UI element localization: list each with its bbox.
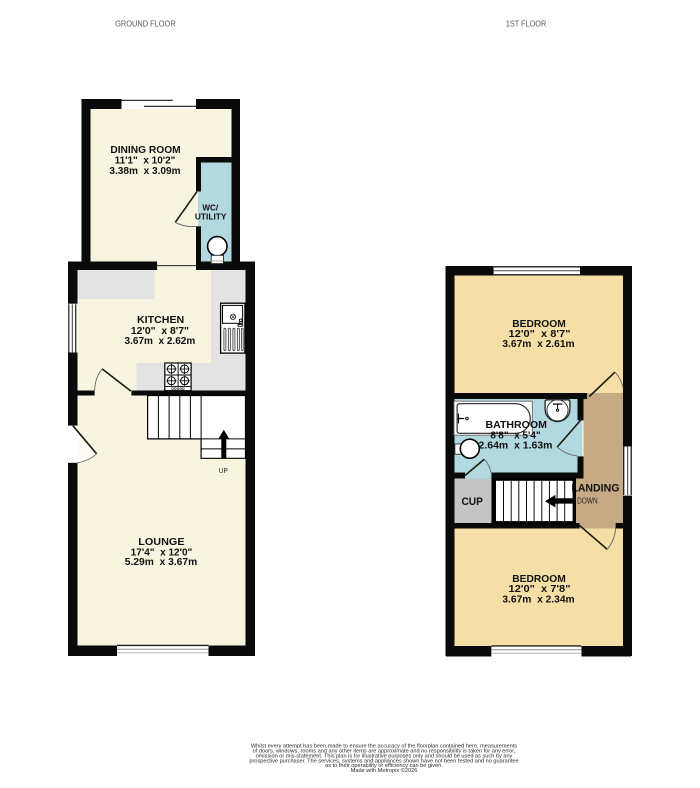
svg-text:GROUND FLOOR: GROUND FLOOR (115, 19, 176, 29)
svg-text:LANDING: LANDING (571, 482, 619, 494)
svg-text:CUP: CUP (461, 496, 483, 508)
svg-text:UTILITY: UTILITY (195, 213, 227, 222)
svg-text:UP: UP (219, 468, 228, 475)
svg-text:2.64m x 1.63m: 2.64m x 1.63m (479, 441, 553, 452)
svg-text:5.29m x 3.67m: 5.29m x 3.67m (125, 557, 198, 568)
svg-text:DOWN: DOWN (577, 497, 598, 506)
svg-text:3.67m x 2.34m: 3.67m x 2.34m (502, 594, 574, 605)
svg-text:1ST FLOOR: 1ST FLOOR (506, 19, 547, 29)
svg-text:3.67m x 2.62m: 3.67m x 2.62m (125, 336, 196, 347)
svg-text:11'1" x 10'2": 11'1" x 10'2" (115, 155, 176, 166)
svg-text:3.38m x 3.09m: 3.38m x 3.09m (109, 166, 180, 177)
svg-text:3.67m x 2.61m: 3.67m x 2.61m (502, 339, 574, 350)
svg-text:Made with Metropix ©2026: Made with Metropix ©2026 (351, 767, 418, 774)
svg-text:KITCHEN: KITCHEN (137, 315, 184, 326)
svg-text:WC/: WC/ (202, 204, 219, 213)
